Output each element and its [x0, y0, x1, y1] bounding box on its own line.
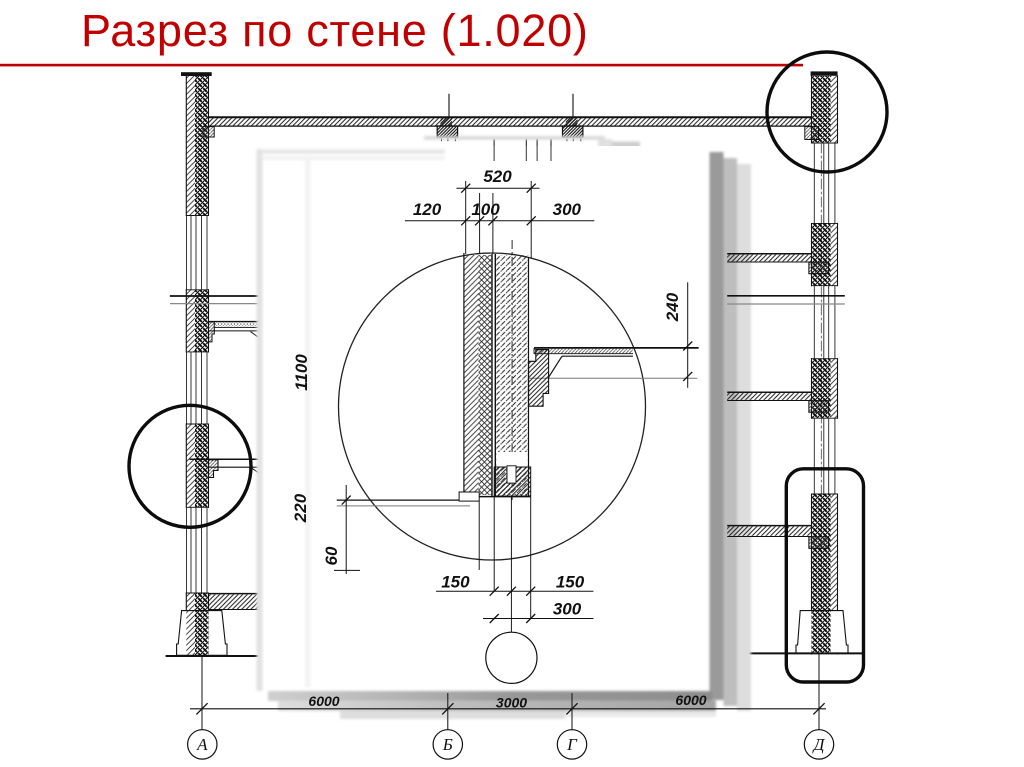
svg-text:А: А [196, 735, 208, 754]
svg-text:150: 150 [556, 573, 585, 592]
svg-text:120: 120 [413, 200, 442, 219]
svg-text:6000: 6000 [675, 692, 706, 708]
svg-text:1100: 1100 [292, 354, 311, 391]
svg-text:300: 300 [553, 600, 582, 619]
svg-text:Г: Г [566, 735, 578, 754]
svg-text:Д: Д [812, 735, 826, 754]
svg-text:100: 100 [471, 200, 500, 219]
svg-text:60: 60 [322, 546, 341, 565]
svg-text:3000: 3000 [496, 695, 527, 711]
svg-text:240: 240 [663, 292, 682, 322]
svg-text:520: 520 [483, 167, 512, 186]
svg-text:150: 150 [441, 573, 470, 592]
svg-text:Б: Б [442, 735, 453, 754]
svg-text:300: 300 [553, 200, 582, 219]
svg-text:220: 220 [291, 493, 310, 523]
svg-text:6000: 6000 [308, 693, 339, 709]
